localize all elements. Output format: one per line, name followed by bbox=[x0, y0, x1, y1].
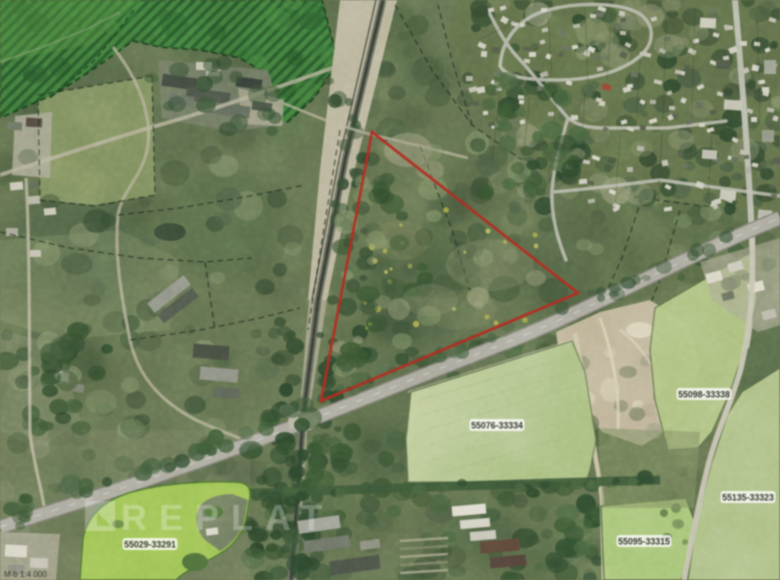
svg-text:55135-33323: 55135-33323 bbox=[722, 493, 774, 503]
svg-text:55076-33334: 55076-33334 bbox=[471, 421, 523, 431]
svg-text:55098-33338: 55098-33338 bbox=[678, 390, 730, 400]
svg-text:55029-33291: 55029-33291 bbox=[124, 540, 176, 550]
svg-text:REPLAT: REPLAT bbox=[121, 497, 334, 538]
svg-text:55095-33315: 55095-33315 bbox=[618, 537, 670, 547]
svg-text:M-b 1:4 000: M-b 1:4 000 bbox=[4, 570, 47, 579]
